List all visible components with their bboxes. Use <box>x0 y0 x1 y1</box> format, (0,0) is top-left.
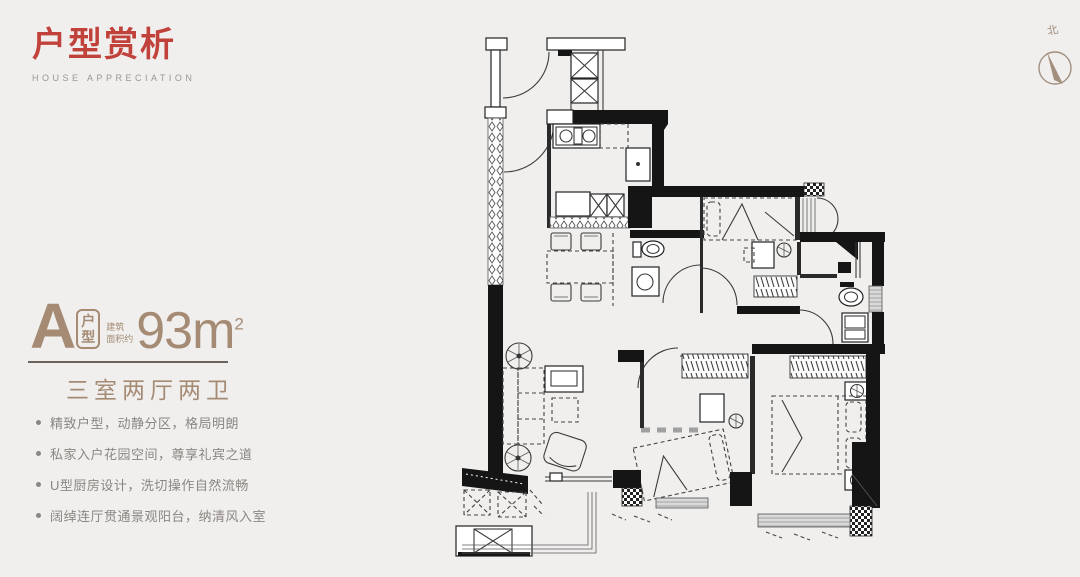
ceiling-fan-icon <box>729 414 743 428</box>
ottoman-icon <box>552 398 578 422</box>
dining-table-icon <box>547 251 613 283</box>
unit-type-bottom: 型 <box>81 329 95 345</box>
toilet-icon <box>633 241 664 257</box>
door-arc <box>663 265 701 303</box>
floorplan <box>450 30 910 565</box>
plant-icon <box>505 445 531 471</box>
ac-pad-icon <box>464 490 490 515</box>
bullet-dot-icon <box>36 482 41 487</box>
area-note-line2: 面积约 <box>106 333 133 345</box>
unit-type-badge: 户 型 <box>76 309 100 349</box>
wardrobe-icon <box>682 354 748 378</box>
sofa-icon <box>503 368 544 444</box>
dining-chair-icon <box>551 233 571 250</box>
bullet-dot-icon <box>36 451 41 456</box>
vanity-icon <box>842 313 868 342</box>
kitchen <box>547 110 668 228</box>
bullet-dot-icon <box>36 420 41 425</box>
bed-icon <box>704 198 796 240</box>
area-value: 93m2 <box>136 311 244 353</box>
door-arc <box>799 310 833 344</box>
door-arc <box>700 268 737 305</box>
bathroom-window <box>869 286 882 312</box>
feature-item: 阔绰连厅贯通景观阳台，纳清风入室 <box>36 506 266 525</box>
unit-type-top: 户 <box>81 313 95 329</box>
desk-icon <box>744 242 774 268</box>
bedroom-window <box>656 498 708 508</box>
plant-icon <box>506 343 532 369</box>
page-header: 户型赏析 HOUSE APPRECIATION <box>32 28 195 83</box>
shower-corner-icon <box>836 242 858 260</box>
feature-item: 精致户型，动静分区，格局明朗 <box>36 413 266 432</box>
entry-pier-wall <box>485 38 507 473</box>
bedroom-2 <box>664 183 838 314</box>
page-title: 户型赏析 <box>32 28 195 62</box>
entry-door-arcs <box>503 52 554 172</box>
bathroom-1 <box>630 230 704 310</box>
desk-icon <box>700 394 724 422</box>
side-table-icon <box>545 366 583 392</box>
living-room <box>503 343 612 481</box>
ceiling-fan-icon <box>777 243 791 257</box>
dining-chair-icon <box>581 233 601 250</box>
bed-icon <box>633 429 734 501</box>
area-note-line1: 建筑 <box>106 321 133 333</box>
armchair-icon <box>542 431 588 473</box>
divider-rule <box>28 361 228 363</box>
unit-summary: A 户 型 建筑 面积约 93m2 <box>30 300 265 352</box>
bullet-dot-icon <box>36 513 41 518</box>
area-superscript: 2 <box>234 315 243 334</box>
dining-chair-icon <box>581 284 601 301</box>
sliding-door <box>545 473 612 481</box>
unit-layout-text: 三室两厅两卫 <box>66 371 234 405</box>
ac-pad-icon <box>498 492 526 517</box>
toilet-icon <box>839 282 863 306</box>
nightstand-icon <box>845 382 869 400</box>
fridge-icon <box>590 194 624 217</box>
unit-letter: A <box>30 300 74 352</box>
washer-icon <box>632 267 659 296</box>
area-note: 建筑 面积约 <box>106 321 133 345</box>
feature-item: 私家入户花园空间，尊享礼宾之道 <box>36 444 266 463</box>
bay-window <box>758 514 850 527</box>
feature-list: 精致户型，动静分区，格局明朗 私家入户花园空间，尊享礼宾之道 U型厨房设计，洗切… <box>36 413 266 537</box>
page-subtitle: HOUSE APPRECIATION <box>32 73 195 83</box>
stove-icon <box>553 124 600 148</box>
dining-area <box>547 233 613 306</box>
compass-icon <box>1028 24 1080 96</box>
ac-outdoor-unit-icon <box>456 526 532 556</box>
wardrobe-icon <box>754 276 797 297</box>
wardrobe-icon <box>790 356 866 378</box>
feature-item: U型厨房设计，洗切操作自然流畅 <box>36 475 266 494</box>
bed-icon <box>772 396 866 474</box>
shower-stall-icon <box>626 148 650 181</box>
master-bedroom <box>758 354 880 540</box>
dining-chair-icon <box>551 284 571 301</box>
